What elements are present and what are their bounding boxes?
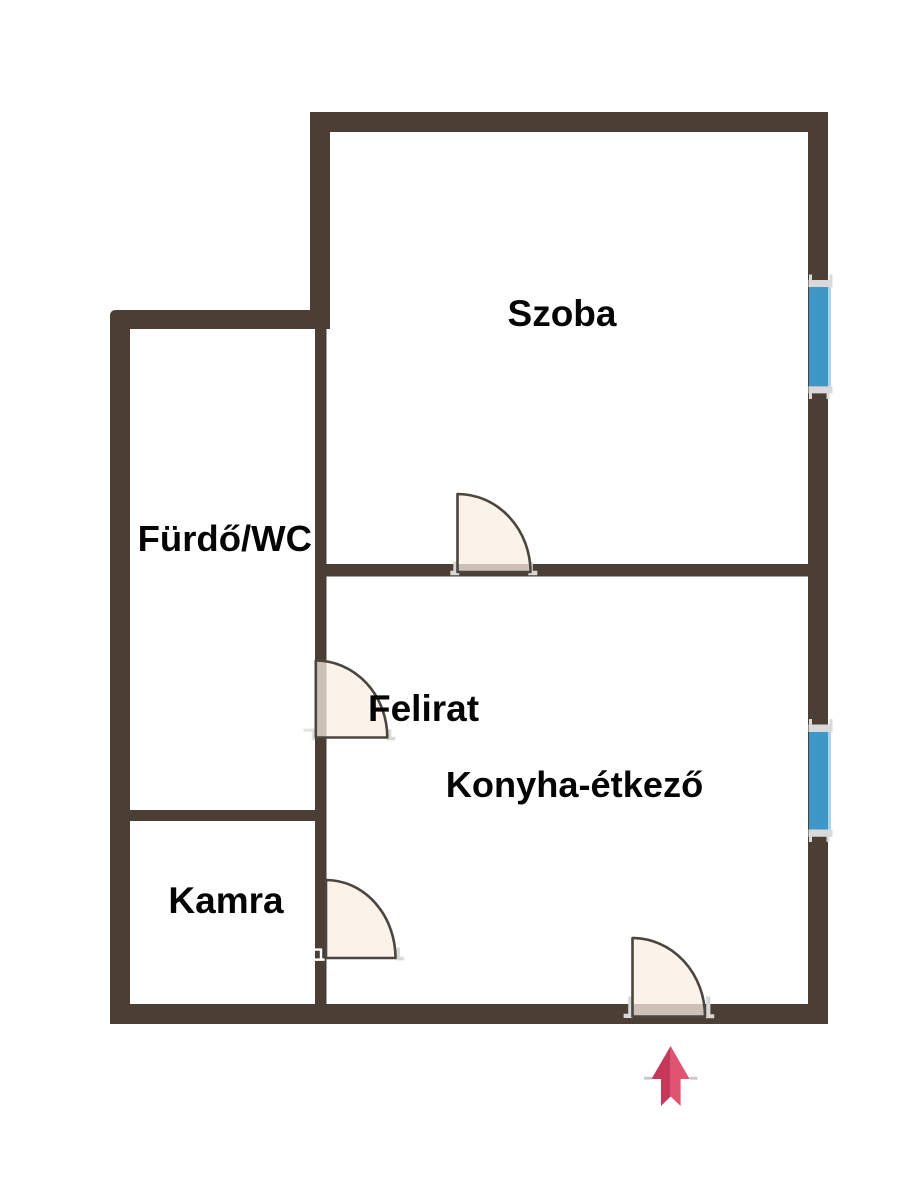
svg-text:Kamra: Kamra <box>168 880 284 921</box>
svg-text:Fürdő/WC: Fürdő/WC <box>138 518 312 559</box>
svg-text:Felirat: Felirat <box>368 688 479 729</box>
svg-text:Konyha-étkező: Konyha-étkező <box>446 764 703 805</box>
svg-text:Szoba: Szoba <box>508 293 617 334</box>
